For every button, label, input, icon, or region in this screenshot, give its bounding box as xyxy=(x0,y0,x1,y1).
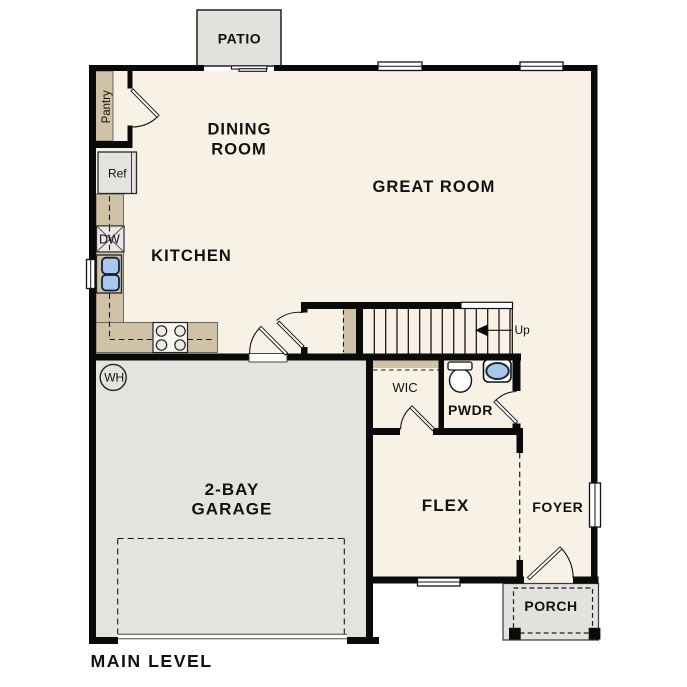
svg-text:GARAGE: GARAGE xyxy=(192,499,273,518)
svg-text:Ref: Ref xyxy=(108,166,127,180)
svg-text:GREAT ROOM: GREAT ROOM xyxy=(373,178,496,196)
svg-text:Up: Up xyxy=(515,323,531,337)
svg-text:DINING: DINING xyxy=(207,121,271,139)
svg-text:WH: WH xyxy=(104,371,124,385)
svg-text:FLEX: FLEX xyxy=(422,496,470,515)
svg-text:FOYER: FOYER xyxy=(532,499,583,515)
svg-text:PATIO: PATIO xyxy=(218,31,261,47)
svg-text:PORCH: PORCH xyxy=(524,598,577,614)
svg-text:WIC: WIC xyxy=(392,380,417,395)
svg-text:PWDR: PWDR xyxy=(448,402,493,418)
svg-text:MAIN LEVEL: MAIN LEVEL xyxy=(91,651,213,671)
svg-text:Pantry: Pantry xyxy=(101,90,113,123)
svg-text:KITCHEN: KITCHEN xyxy=(151,247,232,265)
svg-text:2-BAY: 2-BAY xyxy=(205,480,260,499)
svg-text:ROOM: ROOM xyxy=(211,140,267,158)
